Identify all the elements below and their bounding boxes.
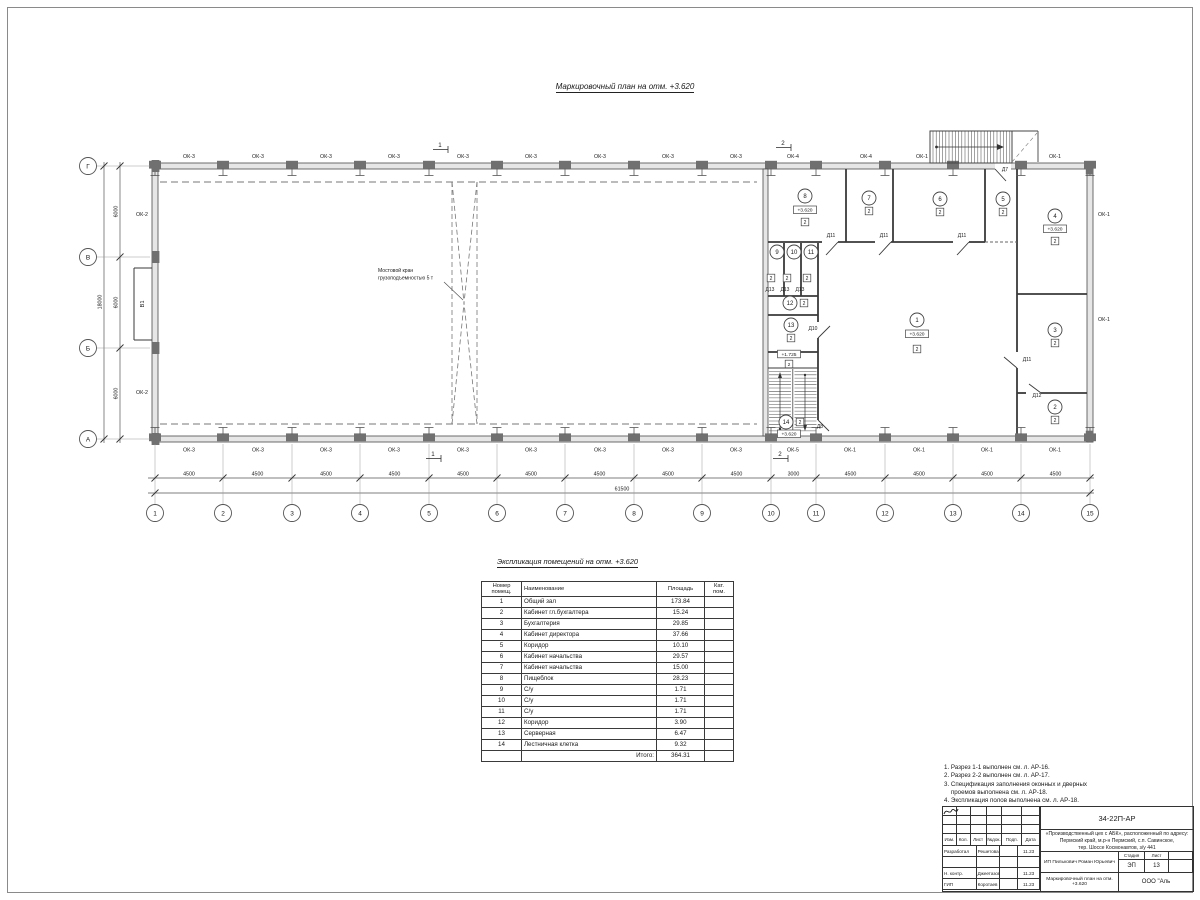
table-cell: 8 [482, 674, 522, 685]
table-cell: Пищеблок [522, 674, 657, 685]
table-cell: 9.32 [657, 740, 705, 751]
crane-note: Мостовой кран [378, 267, 413, 274]
window-label: ОК-1 [981, 448, 993, 454]
col-header-name: Наименование [522, 582, 657, 597]
window-label: ОК-3 [594, 448, 606, 454]
table-cell: 29.85 [657, 619, 705, 630]
door-label: Д11 [880, 233, 889, 239]
window-label: ОК-3 [457, 448, 469, 454]
crane-rails [160, 182, 757, 424]
stair-arrow [997, 144, 1004, 150]
dim-label: 4500 [913, 471, 925, 477]
table-total-row: Итого: 364.31 [482, 751, 734, 762]
window-label: ОК-3 [662, 154, 674, 160]
table-cell: 1.71 [657, 696, 705, 707]
column-mark [810, 161, 822, 169]
signature-cell [1000, 857, 1018, 868]
table-cell: Кабинет гл.бухгалтера [522, 608, 657, 619]
room-category: 2 [1054, 418, 1057, 424]
wall-hall-abk [763, 169, 768, 436]
table-cell: 1 [482, 597, 522, 608]
table-cell: 4 [482, 630, 522, 641]
room-category: 2 [786, 276, 789, 282]
room-number: 12 [787, 301, 794, 307]
table-cell: Коридор [522, 641, 657, 652]
table-cell [705, 630, 734, 641]
column-mark [628, 161, 640, 169]
dim-total-label: 61500 [615, 486, 630, 492]
axis-number: 14 [1017, 511, 1025, 518]
empty-cell [1022, 816, 1040, 825]
axis-number: 2 [221, 511, 225, 518]
table-cell: 15.00 [657, 663, 705, 674]
table-cell: 37.66 [657, 630, 705, 641]
window-labels: ОК-3ОК-3ОК-3ОК-3ОК-3ОК-3ОК-3ОК-3ОК-3ОК-4… [136, 154, 1110, 454]
signature-col-header: Подп. [1002, 834, 1022, 846]
door-label: Д7 [1002, 167, 1008, 173]
table-header-row: Номер помещ. Наименование Площадь Кат. п… [482, 582, 734, 597]
total-empty-cell [705, 751, 734, 762]
column-mark [559, 161, 571, 169]
empty-cell [1002, 816, 1022, 825]
window-label: ОК-3 [730, 154, 742, 160]
signature-name [977, 857, 1001, 868]
column-mark [152, 251, 160, 263]
title-block-signatures: Изм.Кол.Лист№док.Подп.ДатаРазработалРеше… [943, 807, 1041, 891]
axis-letter: Б [86, 345, 90, 352]
column-mark [491, 161, 503, 169]
table-cell: Серверная [522, 729, 657, 740]
door-label: Д11 [1023, 357, 1032, 363]
window-label: ОК-3 [388, 448, 400, 454]
axis-number: 10 [767, 511, 775, 518]
room-markers: 1+3.620222324+3.62025262728+3.6202921021… [767, 189, 1066, 438]
window-label: ОК-3 [525, 448, 537, 454]
table-cell [705, 652, 734, 663]
table-cell: С/у [522, 707, 657, 718]
signature-name: Коротаев [977, 879, 1001, 890]
title-block: Изм.Кол.Лист№док.Подп.ДатаРазработалРеше… [942, 806, 1194, 892]
company-name: ООО "Аль [1119, 873, 1193, 891]
table-row: 11С/у1.71 [482, 707, 734, 718]
client-name: ИП Пилькович Роман Юрьевич [1041, 852, 1119, 873]
table-cell: 12 [482, 718, 522, 729]
signature-date: 11.23 [1018, 846, 1040, 857]
crane-note-leader [444, 282, 463, 300]
signature-col-header: №док. [987, 834, 1003, 846]
table-cell: Кабинет начальства [522, 663, 657, 674]
stair-external [930, 131, 1038, 163]
axis-number: 4 [358, 511, 362, 518]
dim-label: 4500 [457, 471, 469, 477]
signature-col-header: Кол. [957, 834, 971, 846]
window-label: ОК-1 [844, 448, 856, 454]
column-mark [696, 433, 708, 441]
table-cell: С/у [522, 685, 657, 696]
col-header-category: Кат. пом. [705, 582, 734, 597]
room-category: 2 [916, 347, 919, 353]
plan-graphic [935, 146, 938, 149]
table-cell [705, 597, 734, 608]
empty-cell [987, 807, 1003, 816]
axis-number: 12 [881, 511, 889, 518]
project-description: «Производственный цех с АБК», расположен… [1041, 830, 1193, 852]
table-cell: 3 [482, 619, 522, 630]
notes-list: 1. Разрез 1-1 выполнен см. л. АР-16.2. Р… [944, 764, 1087, 805]
window-label: ОК-1 [1049, 154, 1061, 160]
empty-cell [987, 816, 1003, 825]
room-schedule-title: Экспликация помещений на отм. +3.620 [497, 557, 638, 566]
table-cell: 29.57 [657, 652, 705, 663]
table-cell: 2 [482, 608, 522, 619]
table-cell [705, 674, 734, 685]
table-row: 2Кабинет гл.бухгалтера15.24 [482, 608, 734, 619]
window-label: ОК-3 [594, 154, 606, 160]
dim-label: 4500 [1050, 471, 1062, 477]
window-label: ОК-1 [1098, 212, 1110, 218]
column-mark [559, 433, 571, 441]
table-cell [705, 696, 734, 707]
column-mark [423, 433, 435, 441]
column-mark [765, 433, 777, 441]
window-label: ОК-3 [662, 448, 674, 454]
signature-col-header: Изм. [943, 834, 957, 846]
signature-col-header: Лист [971, 834, 987, 846]
table-row: 9С/у1.71 [482, 685, 734, 696]
column-mark [947, 433, 959, 441]
column-mark [879, 433, 891, 441]
walls [152, 163, 1093, 442]
axis-number: 5 [427, 511, 431, 518]
room-number: 10 [791, 250, 798, 256]
dim-label: 6000 [114, 388, 120, 400]
sheet-label: Лист [1145, 852, 1169, 860]
table-cell: 1.71 [657, 685, 705, 696]
axis-number: 13 [949, 511, 957, 518]
empty-cell [943, 825, 957, 834]
window-label: ОК-4 [787, 154, 799, 160]
table-cell [705, 740, 734, 751]
room-number: 13 [788, 323, 795, 329]
column-mark [286, 161, 298, 169]
signature-col-header: Дата [1022, 834, 1040, 846]
signature-role: Разработал [943, 846, 977, 857]
column-mark [491, 433, 503, 441]
table-cell: 13 [482, 729, 522, 740]
crane-note: грузоподъемностью 5 т [378, 276, 434, 282]
column-mark [879, 161, 891, 169]
sheets-label-cut [1169, 852, 1193, 860]
column-mark [765, 161, 777, 169]
document-number: 34-22П-АР [1041, 807, 1193, 830]
project-line: «Производственный цех с АБК», расположен… [1041, 831, 1193, 838]
door-label: Д8 [817, 424, 823, 430]
room-number: 14 [783, 420, 790, 426]
window-label: ОК-1 [916, 154, 928, 160]
signature-date: 11.23 [1018, 868, 1040, 879]
window-label: ОК-3 [183, 154, 195, 160]
table-cell: 173.84 [657, 597, 705, 608]
table-cell: 10 [482, 696, 522, 707]
signature-cell [1000, 846, 1018, 857]
empty-cell [987, 825, 1003, 834]
table-cell [705, 707, 734, 718]
door-label: Д13 [766, 287, 775, 293]
project-line: тер. Шоссе Космонавтов, з/у 441 [1041, 845, 1193, 852]
column-mark [810, 433, 822, 441]
table-cell [705, 608, 734, 619]
axis-number: 9 [700, 511, 704, 518]
room-category: 2 [804, 220, 807, 226]
table-cell [705, 718, 734, 729]
axis-number: 8 [632, 511, 636, 518]
plan-graphic [804, 374, 806, 376]
column-mark [354, 433, 366, 441]
axis-number: 15 [1086, 511, 1094, 518]
room-schedule-table: Номер помещ. Наименование Площадь Кат. п… [481, 581, 734, 762]
axis-letter: В [86, 254, 90, 261]
dim-label: 6000 [114, 297, 120, 309]
note-line: 3. Спецификация заполнения оконных и две… [944, 781, 1087, 789]
misc-labels: Мостовой крангрузоподъемностью 5 тВ1 [140, 267, 434, 308]
table-cell: Кабинет начальства [522, 652, 657, 663]
title-block-info: 34-22П-АР «Производственный цех с АБК», … [1041, 807, 1193, 891]
stage-label: Стадия [1119, 852, 1145, 860]
empty-cell [971, 816, 987, 825]
section-mark-label: 2 [778, 451, 782, 458]
axis-number: 7 [563, 511, 567, 518]
window-label: ОК-3 [252, 448, 264, 454]
column-mark [354, 161, 366, 169]
window-label: ОК-5 [787, 448, 799, 454]
window-label: ОК-2 [136, 212, 148, 218]
note-line: 4. Экспликация полов выполнена см. л. АР… [944, 797, 1087, 805]
axis-number: 6 [495, 511, 499, 518]
room-number: 11 [808, 250, 815, 256]
col-header-area: Площадь [657, 582, 705, 597]
table-cell: 1.71 [657, 707, 705, 718]
sheets-value-cut [1169, 860, 1193, 873]
column-mark [152, 160, 160, 172]
dim-label: 4500 [320, 471, 332, 477]
axis-letter: А [86, 436, 91, 443]
dim-total-label: 18000 [98, 295, 104, 310]
table-cell: 10.10 [657, 641, 705, 652]
table-cell: 6.47 [657, 729, 705, 740]
table-cell: 9 [482, 685, 522, 696]
signature-cell [1000, 879, 1018, 890]
axis-number: 11 [813, 511, 820, 518]
stage-value: ЭП [1119, 860, 1145, 873]
window-label: ОК-3 [525, 154, 537, 160]
note-line: 2. Разрез 2-2 выполнен см. л. АР-17. [944, 772, 1087, 780]
project-line: Пермский край, м.р-н Пермский, с.п. Сави… [1041, 838, 1193, 845]
plan-graphic [1012, 133, 1037, 162]
column-mark [217, 161, 229, 169]
dim-label: 4500 [845, 471, 857, 477]
section-marks: 1122 [426, 140, 791, 462]
dimension-lines [104, 162, 1094, 493]
axis-letter: Г [86, 163, 90, 170]
section-mark-label: 1 [431, 451, 435, 458]
elevation-mark: +3.620 [909, 332, 924, 338]
signature-cell [1000, 868, 1018, 879]
table-cell: Коридор [522, 718, 657, 729]
table-row: 3Бухгалтерия29.85 [482, 619, 734, 630]
table-cell: Кабинет директора [522, 630, 657, 641]
total-value: 364.31 [657, 751, 705, 762]
table-cell [705, 663, 734, 674]
door-label: Д13 [781, 287, 790, 293]
empty-cell [957, 825, 971, 834]
window-label: ОК-3 [457, 154, 469, 160]
table-cell [705, 729, 734, 740]
door-label: Д11 [958, 233, 967, 239]
table-cell: С/у [522, 696, 657, 707]
column-mark [286, 433, 298, 441]
table-cell: Бухгалтерия [522, 619, 657, 630]
window-label: ОК-1 [1049, 448, 1061, 454]
section-mark-label: 2 [781, 140, 785, 147]
room-category: 2 [939, 210, 942, 216]
empty-cell [971, 825, 987, 834]
table-cell: 14 [482, 740, 522, 751]
elevation-mark: +1.725 [781, 352, 796, 358]
door-label: Д13 [796, 287, 805, 293]
table-cell: Лестничная клетка [522, 740, 657, 751]
elevation-mark: +3.620 [781, 432, 796, 438]
table-cell: 15.24 [657, 608, 705, 619]
door-label: Д10 [809, 326, 818, 332]
signature-role: ГИП [943, 879, 977, 890]
plan-title: Маркировочный план на отм. +3.620 [480, 82, 770, 91]
signature-date [1018, 857, 1040, 868]
door-label: Д12 [1033, 393, 1042, 399]
window-label: ОК-3 [183, 448, 195, 454]
table-cell: 11 [482, 707, 522, 718]
dim-label: 4500 [183, 471, 195, 477]
col-header-number: Номер помещ. [482, 582, 522, 597]
window-label: ОК-3 [730, 448, 742, 454]
room-category: 2 [803, 301, 806, 307]
window-label: ОК-1 [1098, 317, 1110, 323]
structural-columns [149, 160, 1096, 445]
note-line: 1. Разрез 1-1 выполнен см. л. АР-16. [944, 764, 1087, 772]
empty-cell [1022, 825, 1040, 834]
table-cell [705, 641, 734, 652]
room-category: 2 [806, 276, 809, 282]
column-mark [1086, 431, 1093, 442]
window-label: ОК-3 [252, 154, 264, 160]
dim-label: 4500 [525, 471, 537, 477]
signature-date: 11.23 [1018, 879, 1040, 890]
wall-right [1087, 163, 1093, 442]
door-label: Д11 [827, 233, 836, 239]
elevation-mark: 2 [788, 362, 791, 368]
elevation-mark: +3.620 [1047, 227, 1062, 233]
column-mark [217, 433, 229, 441]
table-row: 8Пищеблок28.23 [482, 674, 734, 685]
empty-cell [1022, 807, 1040, 816]
column-mark [152, 433, 160, 445]
total-label: Итого: [522, 751, 657, 762]
dim-label: 4500 [594, 471, 606, 477]
column-mark [423, 161, 435, 169]
dim-label: 3000 [788, 471, 800, 477]
dim-label: 4500 [389, 471, 401, 477]
bridge-crane [452, 182, 477, 424]
table-cell: 5 [482, 641, 522, 652]
section-mark-label: 1 [438, 142, 442, 149]
table-row: 14Лестничная клетка9.32 [482, 740, 734, 751]
table-row: 13Серверная6.47 [482, 729, 734, 740]
column-mark [1015, 161, 1027, 169]
window-label: ОК-3 [320, 154, 332, 160]
signature-role: Н. контр. [943, 868, 977, 879]
column-mark [1015, 433, 1027, 441]
room-category: 2 [770, 276, 773, 282]
dim-label: 6000 [114, 206, 120, 218]
note-line: проемов выполнена см. л. АР-18. [944, 789, 1087, 797]
signature-role [943, 857, 977, 868]
table-cell [705, 685, 734, 696]
sheet-value: 13 [1145, 860, 1169, 873]
column-mark [628, 433, 640, 441]
dim-label: 4500 [252, 471, 264, 477]
table-cell: Общий зал [522, 597, 657, 608]
dim-label: 4500 [731, 471, 743, 477]
room-category: 2 [1054, 341, 1057, 347]
table-row: 6Кабинет начальства29.57 [482, 652, 734, 663]
room-category: 2 [868, 209, 871, 215]
axis-number: 1 [153, 511, 157, 518]
signature-name: Джеетазов [977, 868, 1001, 879]
window-label: ОК-4 [860, 154, 872, 160]
empty-cell [1002, 825, 1022, 834]
dim-label: 4500 [662, 471, 674, 477]
window-label: ОК-3 [388, 154, 400, 160]
drawing-title: Маркировочный план на отм. +3.620 [1041, 873, 1119, 891]
empty-cell [1002, 807, 1022, 816]
empty-cell [943, 816, 957, 825]
empty-cell [957, 816, 971, 825]
table-row: 4Кабинет директора37.66 [482, 630, 734, 641]
window-label: ОК-3 [320, 448, 332, 454]
signature-name: Решетова [977, 846, 1001, 857]
table-row: 1Общий зал173.84 [482, 597, 734, 608]
window-label: ОК-1 [913, 448, 925, 454]
room-category: 2 [1054, 239, 1057, 245]
column-mark [696, 161, 708, 169]
dim-label: 4500 [981, 471, 993, 477]
room-category: 2 [790, 336, 793, 342]
shaft-label: В1 [140, 300, 146, 307]
room-category: 2 [1002, 210, 1005, 216]
axis-grid: 123456789101112131415ГВБА [80, 158, 1099, 522]
table-cell: 3.90 [657, 718, 705, 729]
wall-left [152, 163, 158, 442]
table-cell: 6 [482, 652, 522, 663]
table-row: 5Коридор10.10 [482, 641, 734, 652]
total-empty-cell [482, 751, 522, 762]
axis-number: 3 [290, 511, 294, 518]
door-leaves [818, 169, 1041, 431]
column-mark [1086, 164, 1093, 175]
table-row: 7Кабинет начальства15.00 [482, 663, 734, 674]
window-label: ОК-2 [136, 390, 148, 396]
elevation-mark: +3.620 [797, 208, 812, 214]
table-cell: 28.23 [657, 674, 705, 685]
